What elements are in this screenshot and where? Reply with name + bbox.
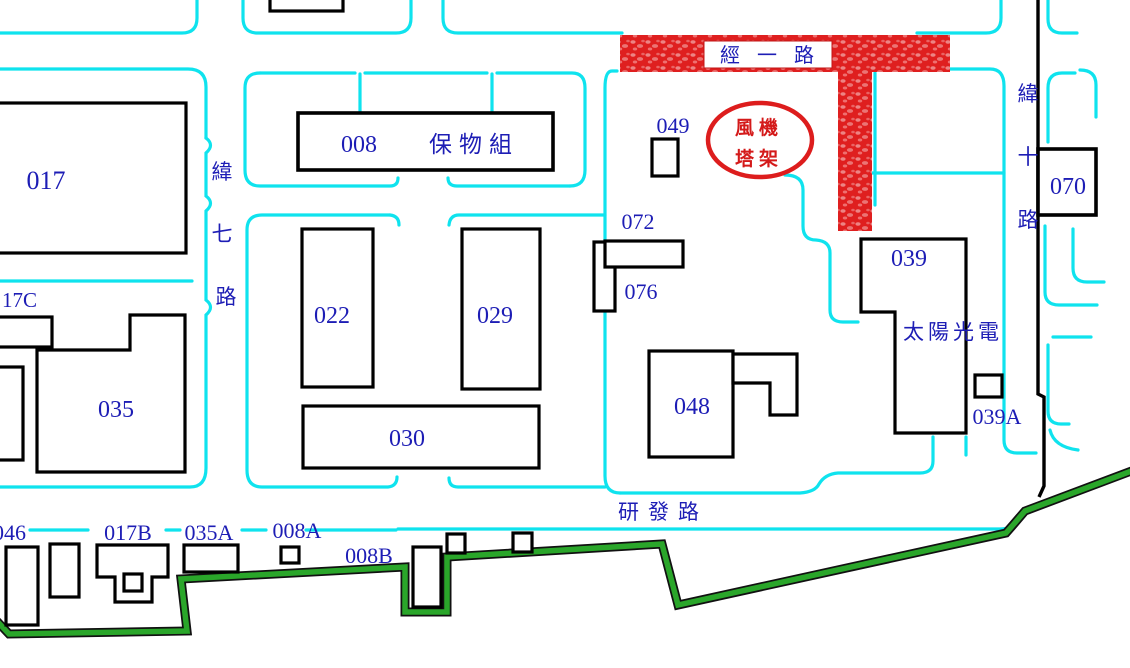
label-072: 072 <box>622 209 655 234</box>
curb-east-corner-arc <box>1050 430 1078 450</box>
building-008b <box>413 547 441 607</box>
label-039-name: 太陽光電 <box>903 320 1003 344</box>
label-030: 030 <box>389 426 425 452</box>
building-046-b <box>50 544 79 597</box>
label-wei-shi-char2: 十 <box>1018 145 1039 169</box>
label-jing-yi-lu: 經 一 路 <box>720 44 820 67</box>
label-029: 029 <box>477 303 513 329</box>
curb-east-line-top-f <box>1048 73 1075 142</box>
buildings-layer <box>0 0 1096 625</box>
building-left-tall <box>0 367 23 460</box>
label-yan-fa-lu: 研發路 <box>618 500 708 524</box>
curb-top-block-left <box>0 0 197 33</box>
label-017b: 017B <box>104 520 152 545</box>
building-017c <box>0 317 52 347</box>
curb-top-block-right <box>443 0 622 33</box>
label-wei-qi-char1: 緯 <box>212 160 233 184</box>
facility-map: 風機 塔架 017 008 保物組 049 072 076 022 029 03… <box>0 0 1130 668</box>
curb-top-east-corner <box>1048 0 1077 33</box>
building-039a <box>975 375 1002 397</box>
label-076: 076 <box>625 279 658 304</box>
label-008: 008 <box>341 132 377 158</box>
highlight-bar-vertical-texture <box>838 72 872 231</box>
label-wei-shi-char1: 緯 <box>1018 82 1039 106</box>
building-017b-notch <box>124 574 142 591</box>
curb-below-070-b <box>1073 229 1104 282</box>
map-canvas: 風機 塔架 017 008 保物組 049 072 076 022 029 03… <box>0 0 1130 668</box>
label-008b: 008B <box>345 543 393 568</box>
building-049 <box>652 139 678 176</box>
annotation-line2: 塔架 <box>735 147 783 170</box>
label-022: 022 <box>314 303 350 329</box>
label-049: 049 <box>657 113 690 138</box>
label-wei-shi-lu: 緯 十 路 <box>1018 82 1039 232</box>
curb-008-driveway-stubs <box>360 74 492 112</box>
property-line-east <box>1038 0 1044 497</box>
building-072 <box>605 241 683 267</box>
label-017: 017 <box>27 166 66 195</box>
label-035: 035 <box>98 397 134 423</box>
curb-east-l-piece <box>1048 345 1069 424</box>
label-wei-shi-char3: 路 <box>1018 208 1039 232</box>
building-035 <box>37 315 185 472</box>
label-039: 039 <box>891 246 927 272</box>
label-070: 070 <box>1050 174 1086 200</box>
label-035a: 035A <box>185 520 234 545</box>
curb-022-block-top-east <box>449 215 605 225</box>
curb-top-right-of-red <box>917 0 1001 33</box>
building-048-wing <box>733 354 797 415</box>
building-small-sq1 <box>447 534 465 553</box>
label-wei-qi-char2: 七 <box>212 222 233 246</box>
curb-022-block-bottom-east <box>449 478 605 487</box>
label-046: 046 <box>0 520 26 545</box>
annotation-line1: 風機 <box>735 116 783 139</box>
building-small-sq2 <box>513 533 532 552</box>
curb-008-block-bottom-east <box>448 178 570 186</box>
label-008-name: 保物組 <box>429 132 519 157</box>
curb-east-hook-top <box>1080 70 1096 117</box>
label-wei-qi-lu: 緯 七 路 <box>212 160 237 309</box>
building-035a <box>184 545 238 572</box>
wind-turbine-annotation: 風機 塔架 <box>708 103 812 177</box>
building-008a <box>281 547 299 563</box>
label-017c: 17C <box>2 288 37 312</box>
curb-below-070-a <box>1045 226 1097 305</box>
label-wei-qi-char3: 路 <box>216 285 237 309</box>
label-008a: 008A <box>273 518 322 543</box>
label-048: 048 <box>674 394 710 420</box>
label-039a: 039A <box>973 404 1022 429</box>
curb-022-block-hook-top <box>390 215 399 225</box>
building-top-small <box>270 0 343 11</box>
building-046-a <box>6 547 38 625</box>
